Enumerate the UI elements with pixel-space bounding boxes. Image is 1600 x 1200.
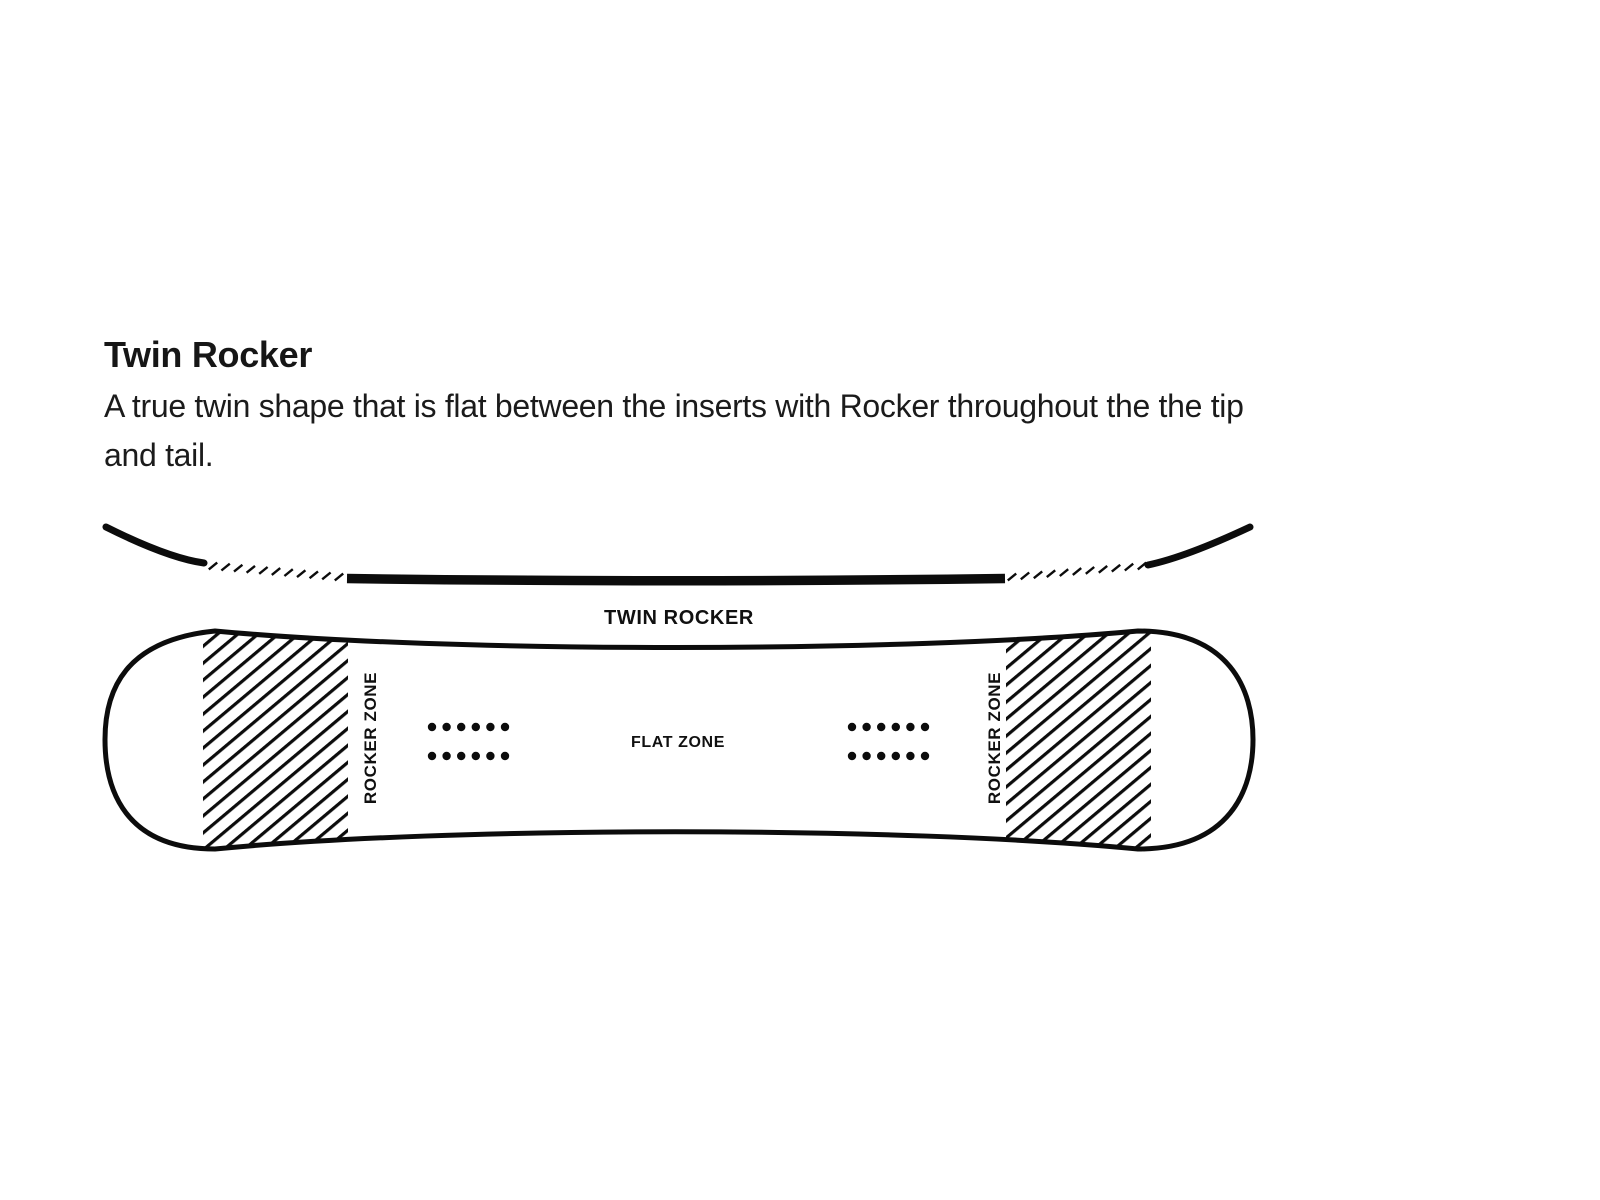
profile-rocker-dash bbox=[1034, 571, 1042, 578]
profile-rocker-dash bbox=[1099, 566, 1107, 573]
insert-dot bbox=[428, 723, 436, 731]
profile-rocker-dash bbox=[1112, 565, 1120, 572]
profile-rocker-dash bbox=[209, 563, 217, 570]
profile-rocker-dash bbox=[234, 565, 242, 572]
profile-rocker-dash bbox=[1008, 574, 1016, 581]
profile-rocker-dash bbox=[1073, 568, 1081, 575]
profile-rocker-dashes-right bbox=[1008, 563, 1146, 581]
profile-rocker-dash bbox=[310, 571, 318, 578]
insert-dot bbox=[906, 723, 914, 731]
insert-dot bbox=[472, 752, 480, 760]
insert-dot bbox=[501, 723, 509, 731]
insert-dot bbox=[877, 752, 885, 760]
flat-zone-label: FLAT ZONE bbox=[631, 734, 725, 751]
profile-tip-curve-left bbox=[106, 527, 204, 563]
profile-rocker-dash bbox=[247, 566, 255, 573]
profile-tip-curve-right bbox=[1148, 527, 1250, 565]
insert-dot bbox=[892, 752, 900, 760]
profile-rocker-dashes-left bbox=[209, 563, 343, 581]
profile-rocker-dash bbox=[1047, 570, 1055, 577]
profile-rocker-dash bbox=[272, 568, 280, 575]
profile-rocker-dash bbox=[284, 569, 292, 576]
snowboard-diagram: TWIN ROCKER FLAT ZONE ROCKER ZONE ROCKER… bbox=[0, 0, 1600, 1200]
rocker-zone-hatch-left bbox=[203, 615, 348, 860]
profile-rocker-dash bbox=[1086, 567, 1094, 574]
insert-dot bbox=[486, 752, 494, 760]
insert-dot bbox=[892, 723, 900, 731]
insert-dot bbox=[501, 752, 509, 760]
insert-dot bbox=[921, 723, 929, 731]
insert-dot bbox=[906, 752, 914, 760]
insert-dot bbox=[877, 723, 885, 731]
rocker-zone-label-right: ROCKER ZONE bbox=[985, 672, 1004, 804]
insert-dot bbox=[848, 752, 856, 760]
profile-rocker-dash bbox=[297, 570, 305, 577]
profile-rocker-dash bbox=[1125, 564, 1133, 571]
insert-dot bbox=[428, 752, 436, 760]
insert-dot bbox=[457, 723, 465, 731]
profile-rocker-dash bbox=[1021, 573, 1029, 580]
profile-flat-bar bbox=[347, 579, 1005, 581]
profile-rocker-dash bbox=[335, 574, 343, 581]
insert-dot bbox=[921, 752, 929, 760]
insert-dot bbox=[457, 752, 465, 760]
profile-diagram bbox=[106, 527, 1250, 581]
rocker-zone-label-left: ROCKER ZONE bbox=[361, 672, 380, 804]
rocker-zone-hatch-right bbox=[1006, 615, 1151, 860]
profile-rocker-dash bbox=[1060, 569, 1068, 576]
profile-label: TWIN ROCKER bbox=[604, 607, 754, 629]
insert-dot bbox=[442, 752, 450, 760]
page: Twin Rocker A true twin shape that is fl… bbox=[0, 0, 1600, 1200]
board-top-view: FLAT ZONE ROCKER ZONE ROCKER ZONE bbox=[105, 615, 1253, 860]
insert-dot bbox=[862, 723, 870, 731]
insert-dot bbox=[442, 723, 450, 731]
insert-dot bbox=[862, 752, 870, 760]
insert-dot bbox=[472, 723, 480, 731]
profile-rocker-dash bbox=[221, 564, 229, 571]
profile-rocker-dash bbox=[322, 573, 330, 580]
insert-dot bbox=[486, 723, 494, 731]
insert-dot bbox=[848, 723, 856, 731]
profile-rocker-dash bbox=[259, 567, 267, 574]
